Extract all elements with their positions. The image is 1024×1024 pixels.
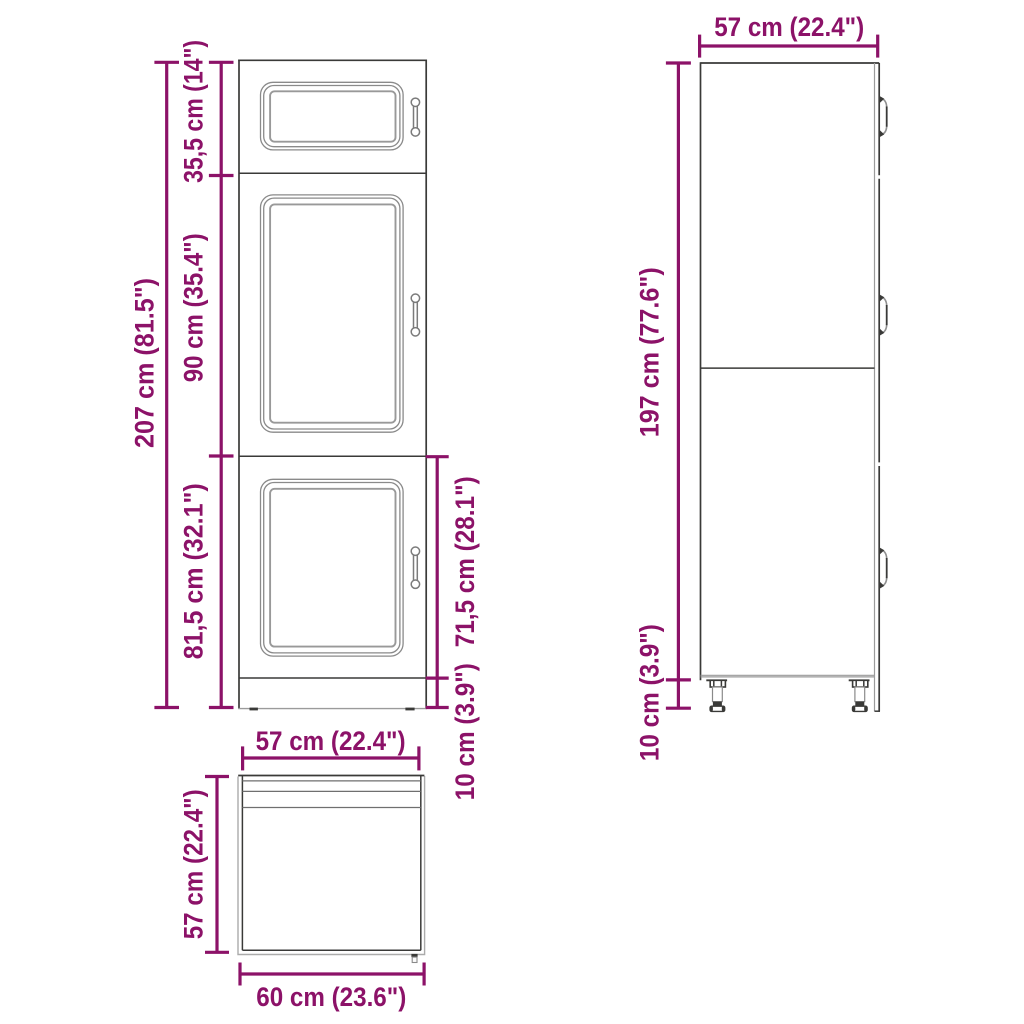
svg-text:81,5 cm (32.1"): 81,5 cm (32.1")	[179, 483, 209, 659]
svg-text:57 cm (22.4"): 57 cm (22.4")	[256, 726, 406, 756]
svg-text:197 cm (77.6"): 197 cm (77.6")	[635, 267, 665, 437]
svg-text:60 cm (23.6"): 60 cm (23.6")	[256, 982, 406, 1012]
svg-text:207 cm (81.5"): 207 cm (81.5")	[130, 278, 160, 448]
svg-text:10 cm (3.9"): 10 cm (3.9")	[450, 663, 480, 800]
svg-text:57 cm (22.4"): 57 cm (22.4")	[714, 12, 864, 42]
svg-text:90 cm (35.4"): 90 cm (35.4")	[179, 233, 209, 382]
svg-text:57 cm (22.4"): 57 cm (22.4")	[179, 789, 209, 939]
svg-text:10 cm (3.9"): 10 cm (3.9")	[635, 624, 665, 761]
svg-text:35,5 cm (14"): 35,5 cm (14")	[179, 40, 209, 183]
svg-text:71,5 cm (28.1"): 71,5 cm (28.1")	[450, 476, 480, 647]
